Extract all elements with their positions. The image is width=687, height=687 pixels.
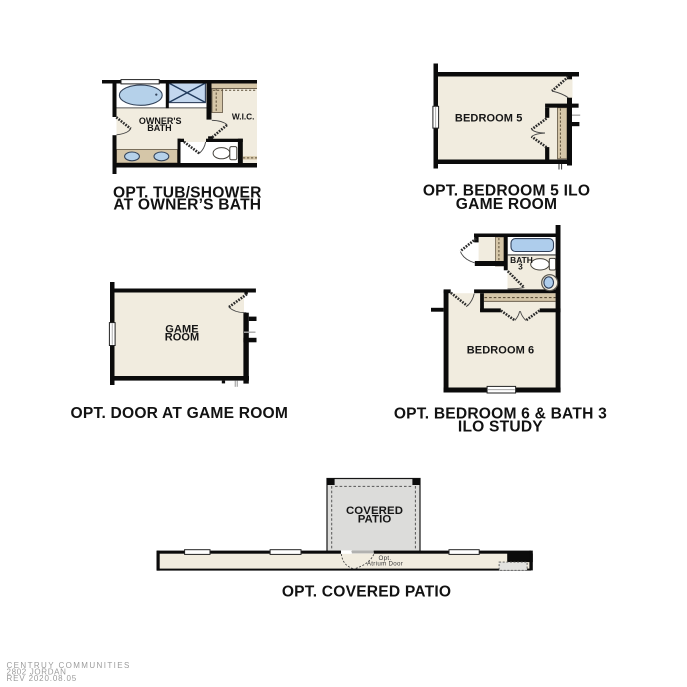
- svg-text:BEDROOM 6: BEDROOM 6: [467, 345, 535, 357]
- svg-text:ROOM: ROOM: [165, 332, 200, 344]
- svg-text:AT OWNER’S BATH: AT OWNER’S BATH: [113, 196, 261, 213]
- svg-text:3: 3: [518, 262, 523, 272]
- svg-text:GAME ROOM: GAME ROOM: [456, 196, 557, 213]
- svg-text:REV 2020.08.05: REV 2020.08.05: [7, 674, 78, 683]
- svg-text:Atrium Door: Atrium Door: [367, 561, 403, 568]
- svg-text:PATIO: PATIO: [358, 514, 392, 526]
- svg-text:BEDROOM 5: BEDROOM 5: [455, 113, 523, 125]
- svg-text:ILO STUDY: ILO STUDY: [458, 418, 543, 435]
- svg-text:W.I.C.: W.I.C.: [232, 112, 255, 122]
- svg-text:OPT. COVERED PATIO: OPT. COVERED PATIO: [282, 583, 451, 600]
- svg-text:OPT. DOOR AT GAME ROOM: OPT. DOOR AT GAME ROOM: [71, 405, 289, 422]
- svg-text:BATH: BATH: [147, 123, 171, 133]
